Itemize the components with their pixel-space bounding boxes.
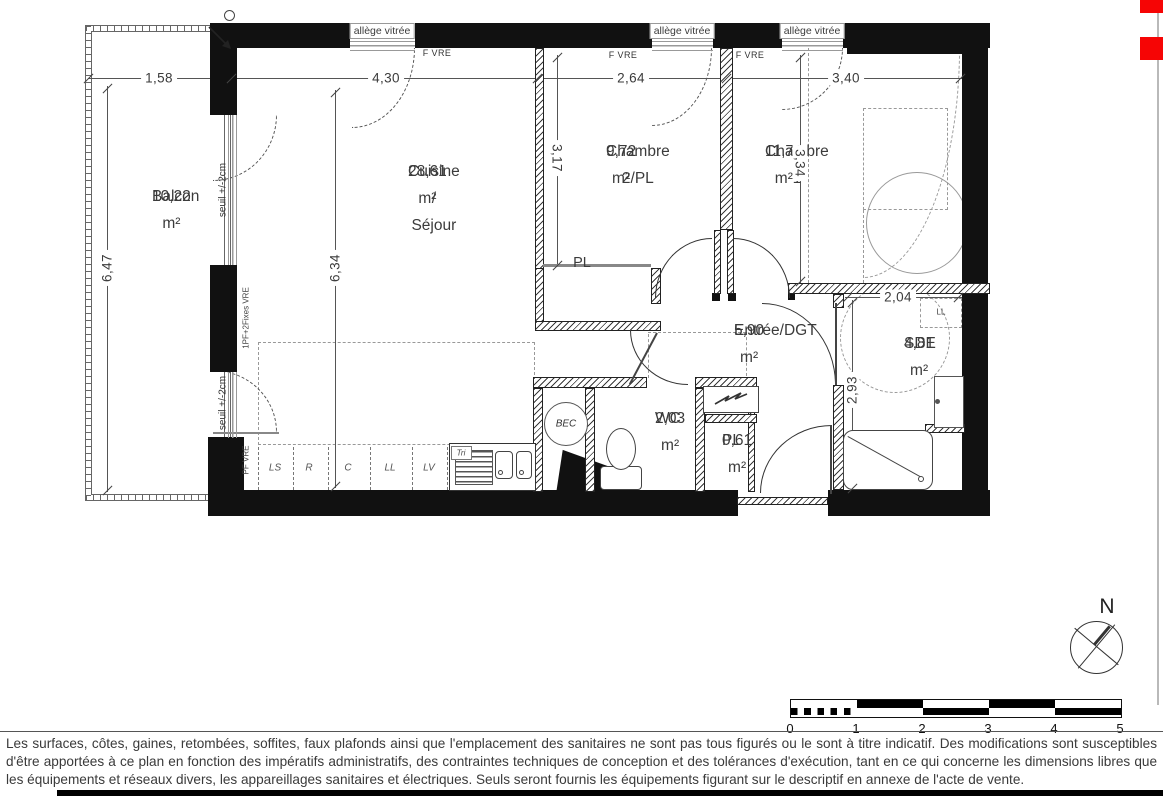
floor-plan-page: Balcon10,22 m²Cuisine / Séjour28,61 m²Ch… — [0, 0, 1163, 800]
annotation-bec: BEC — [556, 419, 577, 430]
annotation-all-ge-vitr-e: allège vitrée — [350, 23, 415, 39]
annotation-f-vre: F VRE — [609, 50, 638, 60]
dimension-label-3-40: 3,40 — [828, 71, 864, 86]
disclaimer-text: Les surfaces, côtes, gaines, retombées, … — [6, 735, 1157, 789]
room-area: 28,61 m² — [408, 158, 447, 212]
scale-number-0: 0 — [786, 721, 793, 736]
annotation-n: N — [1099, 595, 1114, 619]
kitchen-unit-c: C — [344, 463, 351, 474]
annotation-all-ge-vitr-e: allège vitrée — [650, 23, 715, 39]
annotation-f-vre: F VRE — [736, 50, 765, 60]
scale-number-5: 5 — [1116, 721, 1123, 736]
room-area: 9,72 m² — [606, 138, 636, 192]
footer-separator — [0, 731, 1163, 732]
room-area: 5,90 m² — [734, 317, 764, 371]
annotation-seuil-2cm: seuil +/-2cm — [218, 163, 229, 217]
scale-number-2: 2 — [918, 721, 925, 736]
annotation-seuil-2cm: seuil +/-2cm — [218, 376, 229, 430]
annotation-pl: PL — [573, 255, 591, 271]
dimension-label-6-47: 6,47 — [100, 250, 115, 286]
annotation-ll: LL — [937, 308, 946, 317]
labels-layer: Balcon10,22 m²Cuisine / Séjour28,61 m²Ch… — [0, 0, 1163, 800]
annotation-f-vre: F VRE — [423, 48, 452, 58]
dimension-label-2-04: 2,04 — [880, 290, 916, 305]
dimension-label-2-64: 2,64 — [613, 71, 649, 86]
annotation-tri: Tri — [457, 449, 466, 458]
annotation-all-ge-vitr-e: allège vitrée — [780, 23, 845, 39]
room-area: 4,81 m² — [904, 330, 934, 384]
kitchen-unit-r: R — [305, 463, 312, 474]
dimension-label-4-30: 4,30 — [368, 71, 404, 86]
dimension-label-3-34: 3,34 — [793, 145, 808, 181]
footer-bar — [57, 790, 1163, 796]
room-area: 10,22 m² — [152, 183, 191, 237]
dimension-label-1-58: 1,58 — [141, 71, 177, 86]
annotation-pf-vre: PF VRE — [242, 446, 251, 475]
kitchen-unit-ls: LS — [269, 463, 281, 474]
dimension-label-2-93: 2,93 — [845, 372, 860, 408]
kitchen-unit-lv: LV — [423, 463, 435, 474]
scale-number-3: 3 — [984, 721, 991, 736]
scale-number-1: 1 — [852, 721, 859, 736]
dimension-label-3-17: 3,17 — [550, 140, 565, 176]
kitchen-unit-ll: LL — [384, 463, 395, 474]
dimension-label-6-34: 6,34 — [328, 250, 343, 286]
annotation-1pf-2fixes-vre: 1PF+2Fixes VRE — [242, 287, 251, 349]
scale-number-4: 4 — [1050, 721, 1057, 736]
room-area: 0,61 m² — [722, 427, 752, 481]
room-area: 2,03 m² — [655, 405, 685, 459]
